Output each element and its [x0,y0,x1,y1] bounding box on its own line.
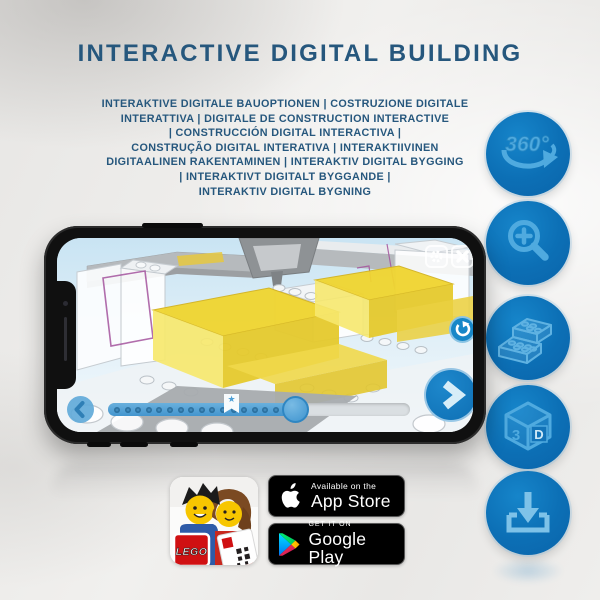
page-title: INTERACTIVE DIGITAL BUILDING [0,40,600,68]
chevron-right-icon [426,368,473,422]
build-progress-slider[interactable] [108,403,410,416]
download-icon-reflection [492,558,564,584]
app-store-tagline: Available on the [311,482,391,491]
marketing-page: { "header": { "title": "INTERACTIVE DIGI… [0,0,600,600]
phone-notch [55,281,76,389]
zoom-in-icon [486,201,570,285]
slider-thumb[interactable] [282,396,309,423]
app-store-name: App Store [311,492,391,510]
download-glyph [497,482,559,544]
phone-volume-up-button [120,442,148,447]
view-3d-icon: 3 D [486,385,570,469]
rotate-360-glyph: 360° [495,123,561,185]
page-subtitle-translations: INTERAKTIVE DIGITALE BAUOPTIONEN | COSTR… [62,97,508,199]
phone-power-button [142,223,203,228]
previous-step-button[interactable] [67,396,94,423]
view-3d-glyph: 3 D [497,396,559,458]
zoom-in-glyph [497,212,559,274]
chevron-left-icon [67,396,94,423]
instruction-booklet [217,529,258,565]
rotate-360-icon: 360° [486,112,570,196]
bookmark-star-icon: ★ [227,394,235,405]
brick-options-glyph [497,307,559,369]
phone-mockup: ★ [44,226,486,444]
google-play-badge[interactable]: GET IT ON Google Play [268,523,405,565]
phone-mute-switch [87,442,111,447]
phone-volume-down-button [170,442,198,447]
earpiece-speaker [64,317,67,361]
google-play-name: Google Play [309,530,404,567]
gear-icon [429,249,444,264]
label-360: 360° [505,133,549,156]
apple-icon [279,483,302,510]
lego-logo-text: LEGO [176,546,208,558]
app-store-badge[interactable]: Available on the App Store [268,475,405,517]
label-d: D [534,427,543,442]
download-icon [486,471,570,555]
brick-options-icon [486,296,570,380]
slider-fill [108,403,296,416]
reset-view-button[interactable] [449,316,473,343]
lego-app-art: LEGO [170,477,258,565]
phone-reflection [52,464,478,510]
phone-screen: ★ [57,238,473,432]
settings-button[interactable] [425,245,448,268]
google-play-tagline: GET IT ON [309,521,404,528]
close-button[interactable] [451,245,473,268]
label-3: 3 [512,427,520,444]
lego-instructions-app-icon[interactable]: LEGO [170,477,258,565]
close-icon [456,250,469,263]
google-play-icon [279,533,300,556]
next-step-button[interactable] [424,368,473,422]
slider-step-dots [114,407,290,413]
rotate-icon [454,321,471,338]
front-camera [63,301,68,306]
